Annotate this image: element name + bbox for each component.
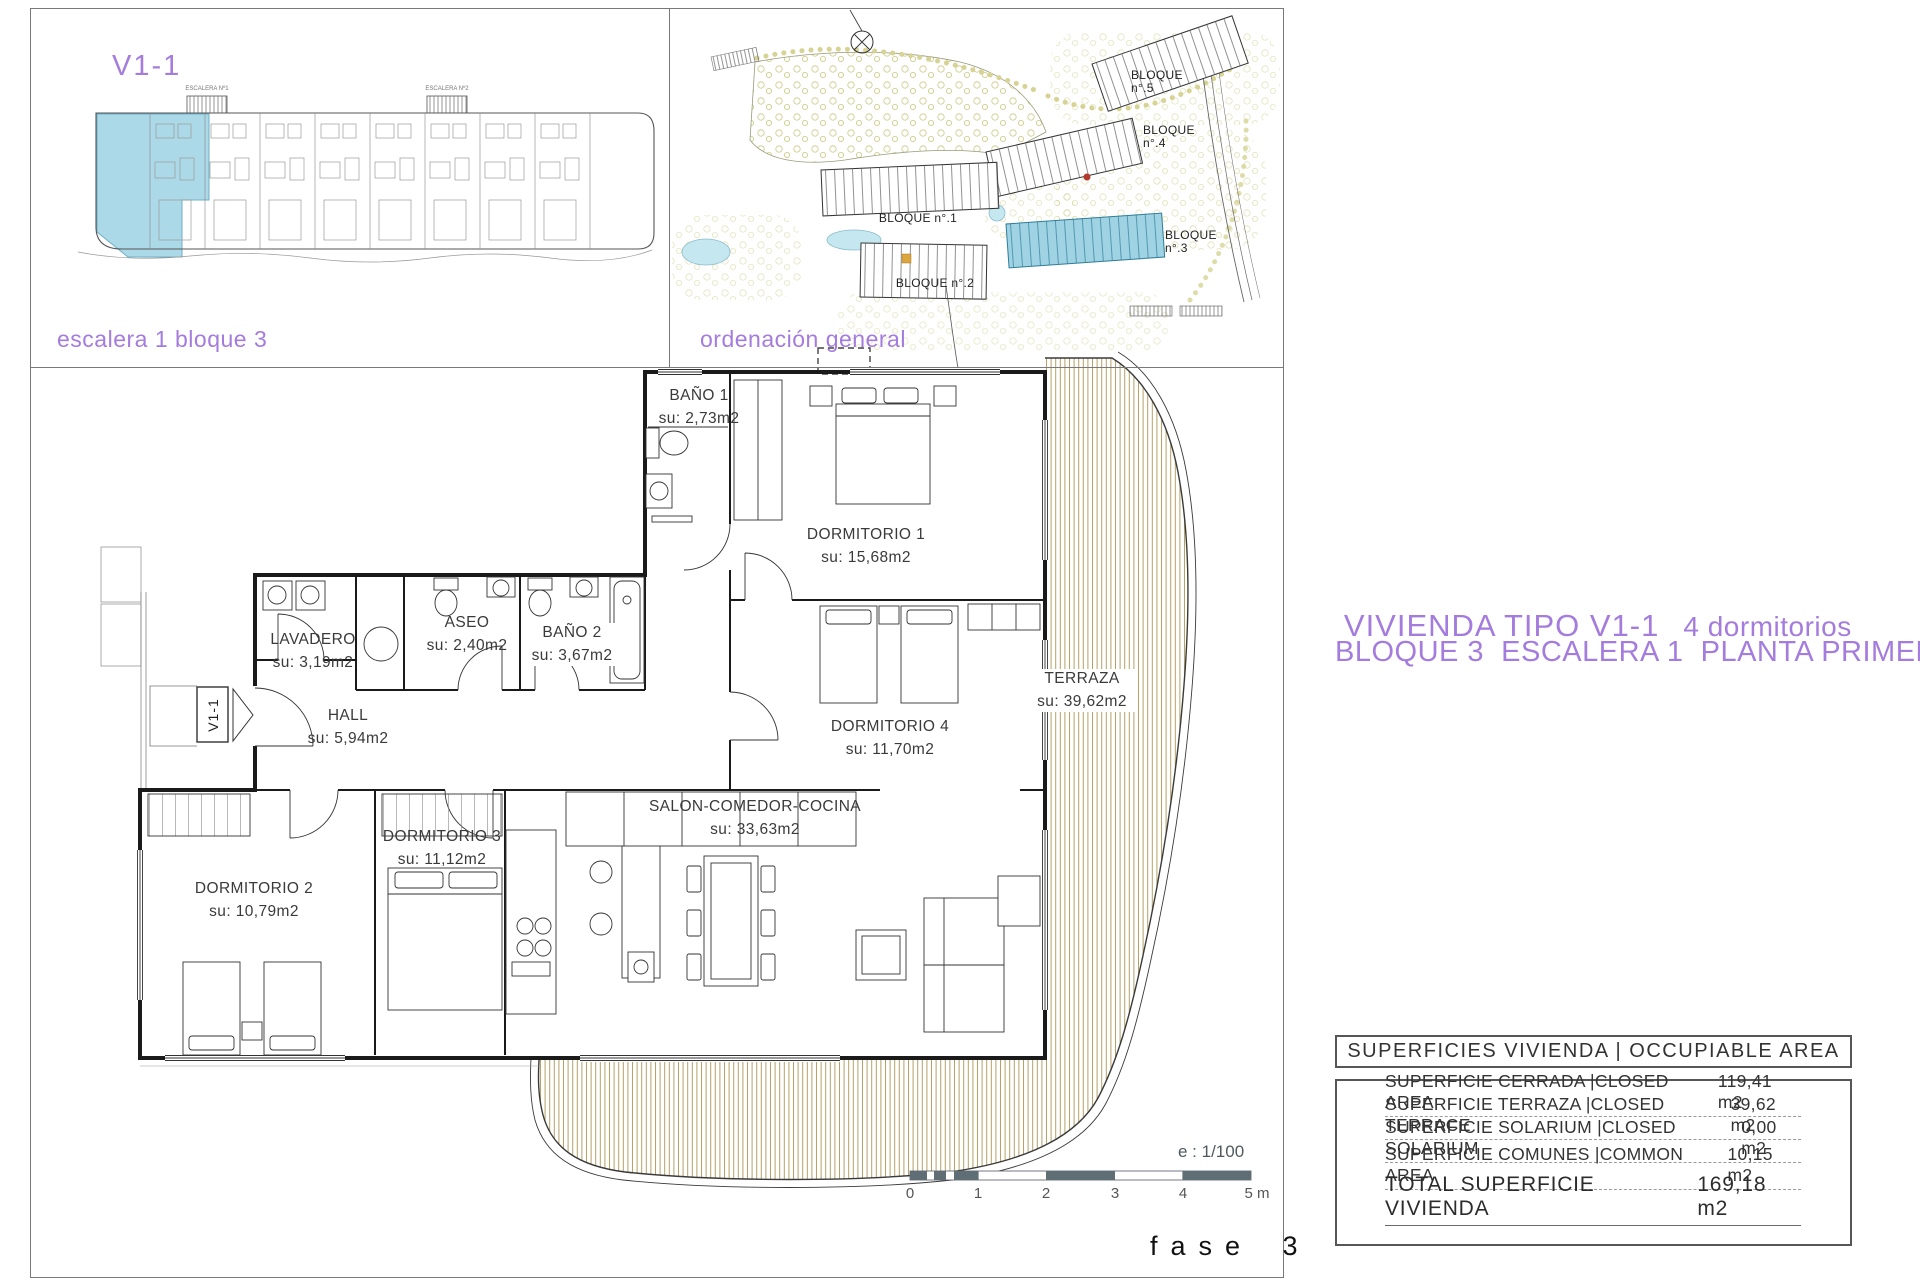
room-label-bano2: BAÑO 2 su: 3,67m2 bbox=[522, 623, 623, 666]
block-3-label: BLOQUE n°.3 bbox=[1165, 229, 1223, 255]
entry-unit-tag: V1-1 bbox=[197, 687, 228, 742]
room-label-hall: HALL su: 5,94m2 bbox=[308, 708, 389, 747]
panel-divider-horizontal bbox=[30, 367, 1283, 368]
total-value: 169,18 m2 bbox=[1697, 1173, 1801, 1221]
block-2-label: BLOQUE n°.2 bbox=[896, 277, 974, 290]
surface-table-header: SUPERFICIES VIVIENDA | OCCUPIABLE AREA bbox=[1335, 1035, 1852, 1068]
scale-tick-0: 0 bbox=[906, 1185, 914, 1202]
caption-ordenacion: ordenación general bbox=[700, 326, 906, 353]
plan-sheet: { "panel_escalera": { "unit_code": "V1-1… bbox=[0, 0, 1920, 1280]
surface-table: SUPERFICIE CERRADA |CLOSED AREA 119,41 m… bbox=[1335, 1079, 1852, 1246]
scale-ratio-label: e : 1/100 bbox=[1178, 1142, 1244, 1162]
stair-label-2: ESCALERA Nº2 bbox=[425, 86, 468, 92]
sheet-frame bbox=[30, 8, 1284, 1278]
room-label-dormitorio1: DORMITORIO 1 su: 15,68m2 bbox=[807, 527, 925, 566]
scale-tick-3: 3 bbox=[1111, 1185, 1119, 1202]
room-label-dormitorio2: DORMITORIO 2 su: 10,79m2 bbox=[195, 881, 313, 920]
plan-title-line2: BLOQUE 3 ESCALERA 1 PLANTA PRIMERA bbox=[1335, 636, 1920, 669]
block-1-label: BLOQUE n°.1 bbox=[879, 212, 957, 225]
room-label-terraza: TERRAZA su: 39,62m2 bbox=[1027, 669, 1137, 712]
stair-label-1: ESCALERA Nº1 bbox=[185, 86, 228, 92]
scale-tick-4: 4 bbox=[1179, 1185, 1187, 1202]
room-label-bano1: BAÑO 1 su: 2,73m2 bbox=[659, 388, 740, 427]
table-total-row: TOTAL SUPERFICIE VIVIENDA 169,18 m2 bbox=[1385, 1190, 1801, 1226]
room-label-aseo: ASEO su: 2,40m2 bbox=[427, 615, 508, 654]
room-label-dormitorio4: DORMITORIO 4 su: 11,70m2 bbox=[831, 719, 949, 758]
scale-tick-2: 2 bbox=[1042, 1185, 1050, 1202]
block-4-label: BLOQUE n°.4 bbox=[1143, 124, 1201, 150]
block-5-label: BLOQUE n°.5 bbox=[1131, 69, 1189, 95]
panel-divider-vertical bbox=[669, 8, 670, 367]
unit-code-label: V1-1 bbox=[112, 50, 181, 83]
total-label: TOTAL SUPERFICIE VIVIENDA bbox=[1385, 1173, 1697, 1221]
phase-label: fase 3 bbox=[1150, 1231, 1311, 1262]
caption-escalera: escalera 1 bloque 3 bbox=[57, 326, 267, 353]
scale-tick-1: 1 bbox=[974, 1185, 982, 1202]
scale-tick-5: 5 m bbox=[1244, 1185, 1269, 1202]
room-label-salon: SALON-COMEDOR-COCINA su: 33,63m2 bbox=[649, 799, 861, 838]
room-label-lavadero: LAVADERO su: 3,19m2 bbox=[270, 632, 355, 671]
room-label-dormitorio3: DORMITORIO 3 su: 11,12m2 bbox=[383, 829, 501, 868]
